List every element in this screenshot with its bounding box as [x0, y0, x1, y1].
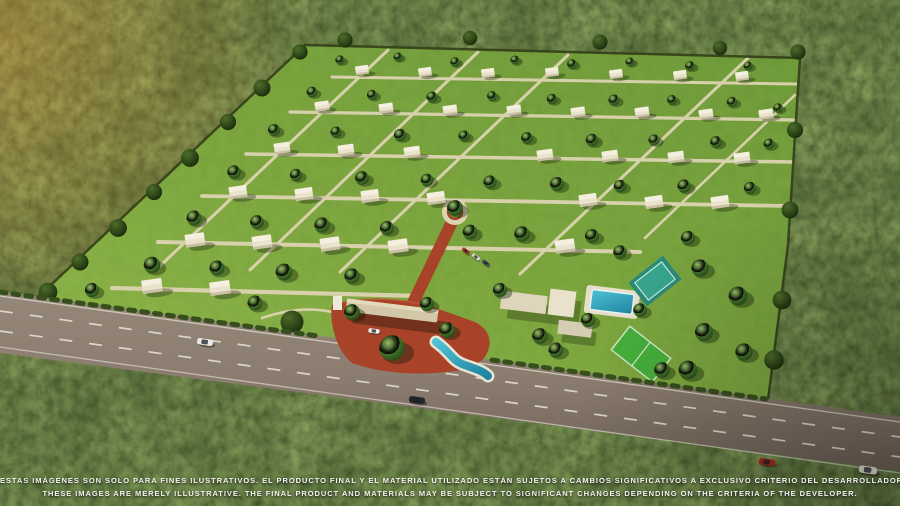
disclaimer-line-english: THESE IMAGES ARE MERELY ILLUSTRATIVE. TH… [0, 488, 900, 501]
render-scene [0, 0, 900, 506]
disclaimer-line-spanish: ESTAS IMÁGENES SON SOLO PARA FINES ILUST… [0, 475, 900, 488]
aerial-render-image: ESTAS IMÁGENES SON SOLO PARA FINES ILUST… [0, 0, 900, 506]
disclaimer: ESTAS IMÁGENES SON SOLO PARA FINES ILUST… [0, 475, 900, 500]
corner-shading [0, 0, 900, 506]
